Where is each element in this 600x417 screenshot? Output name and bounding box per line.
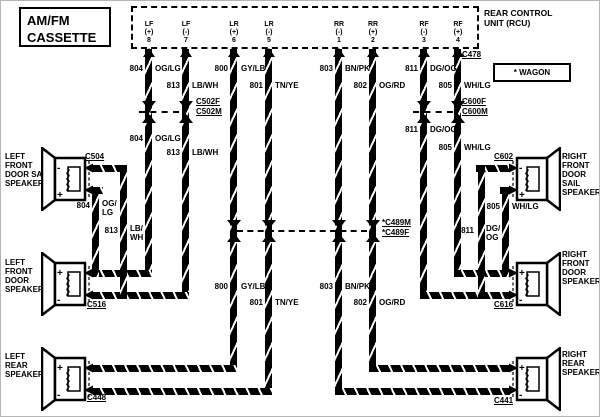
pin-rf-plus: RF(+)4 [443, 21, 473, 45]
connector-c489f: *C489F [382, 228, 409, 237]
wire-801-rcu-arrow [263, 48, 275, 57]
c489-dashed-line [237, 230, 367, 232]
wire-number: 804 [121, 134, 143, 143]
right-rear-speaker-label: RIGHTREARSPEAKER [562, 350, 600, 377]
pin-lr-plus: LR(+)6 [219, 21, 249, 45]
wire-number: 802 [345, 81, 367, 90]
wire-804-rcu-arrow [143, 48, 155, 57]
left-door-speaker-label: LEFTFRONTDOORSPEAKER [5, 258, 44, 294]
wire-color: OG/LG [155, 134, 181, 143]
rcu-label-line2: UNIT (RCU) [484, 18, 530, 28]
title-line1: AM/FM [27, 13, 70, 28]
connector-c502f: C502F [196, 97, 220, 106]
polarity-bottom: - [57, 295, 60, 306]
wire-805-vertical [454, 49, 461, 277]
wire-number: 805 [430, 81, 452, 90]
pin-rr-plus: RR(+)2 [358, 21, 388, 45]
wire-803-horizontal [335, 388, 510, 395]
wire-color: LB/WH [130, 224, 143, 242]
wire-813-horizontal [93, 292, 189, 299]
right-door-speaker-symbol: + - [509, 252, 561, 316]
wire-800-rcu-arrow [228, 48, 240, 57]
wire-811-rcu-arrow [418, 48, 430, 57]
wire-color: DG/OG [430, 64, 457, 73]
speaker-cone [547, 253, 560, 315]
wire-801-horizontal [93, 388, 272, 395]
polarity-top: - [519, 163, 522, 174]
pin-lf-plus: LF(+)8 [134, 21, 164, 45]
c489-connector-symbol-800 [226, 220, 242, 242]
speaker-cone [42, 348, 55, 410]
diagram-title: AM/FMCASSETTE [19, 7, 111, 47]
connector-c478: C478 [462, 50, 481, 59]
c489-connector-symbol-803 [331, 220, 347, 242]
wire-number: 813 [158, 148, 180, 157]
wire-802-rcu-arrow [367, 48, 379, 57]
rcu-label: REAR CONTROLUNIT (RCU) [484, 8, 552, 28]
wire-number: 811 [396, 64, 418, 73]
wire-number: 805 [430, 143, 452, 152]
wire-811-horizontal [420, 292, 510, 299]
right-sail-speaker-symbol: - + [509, 147, 561, 211]
wire-number: 803 [311, 282, 333, 291]
pin-rf-minus: RF(-)3 [409, 21, 439, 45]
wire-number: 801 [241, 81, 263, 90]
c489-connector-symbol-802 [365, 220, 381, 242]
wire-number: 803 [311, 64, 333, 73]
c489-connector-symbol-801 [261, 220, 277, 242]
wire-number: 813 [96, 226, 118, 235]
wire-color: GY/LB [241, 282, 265, 291]
wire-color: GY/LB [241, 64, 265, 73]
wire-color: DG/OG [486, 224, 500, 242]
wire-number: 805 [478, 202, 500, 211]
wire-color: OG/LG [155, 64, 181, 73]
polarity-bottom: + [57, 190, 63, 201]
polarity-top: + [57, 268, 63, 279]
speaker-cone [42, 148, 55, 210]
wire-color: OG/LG [102, 199, 117, 217]
wire-color: LB/WH [192, 148, 218, 157]
rcu-label-line1: REAR CONTROL [484, 8, 552, 18]
wire-number: 811 [396, 125, 418, 134]
wire-color: OG/RD [379, 298, 405, 307]
wire-811-vertical [420, 49, 427, 299]
wagon-note: * WAGON [493, 63, 571, 82]
wire-813-vertical [182, 49, 189, 299]
right-sail-branch-811 [478, 165, 485, 299]
wire-number: 801 [241, 298, 263, 307]
polarity-bottom: - [57, 390, 60, 401]
polarity-bottom: + [519, 190, 525, 201]
title-line2: CASSETTE [27, 30, 96, 45]
polarity-top: + [57, 363, 63, 374]
right-sail-speaker-label: RIGHTFRONTDOOR SAILSPEAKER [562, 152, 600, 197]
polarity-top: + [519, 363, 525, 374]
c502-connector-symbol-813 [178, 101, 194, 123]
wire-color: OG/RD [379, 81, 405, 90]
right-door-speaker-label: RIGHTFRONTDOORSPEAKER [562, 250, 600, 286]
right-rear-speaker-symbol: + - [509, 347, 561, 411]
wiring-diagram: AM/FMCASSETTE REAR CONTROLUNIT (RCU) C47… [0, 0, 600, 417]
right-sail-branch-805 [502, 187, 509, 277]
speaker-cone [547, 148, 560, 210]
wire-804-vertical [145, 49, 152, 277]
polarity-bottom: - [519, 390, 522, 401]
wire-number: 800 [206, 64, 228, 73]
wire-805-rcu-arrow [452, 48, 464, 57]
wire-number: 813 [158, 81, 180, 90]
wire-number: 800 [206, 282, 228, 291]
left-rear-speaker-symbol: + - [41, 347, 93, 411]
left-sail-branch-813 [120, 165, 127, 299]
wire-800-horizontal [93, 365, 237, 372]
connector-c600m: C600M [462, 107, 488, 116]
wire-color: DG/OG [430, 125, 457, 134]
wire-813-rcu-arrow [180, 48, 192, 57]
wire-color: TN/YE [275, 298, 299, 307]
wire-color: LB/WH [192, 81, 218, 90]
wire-color: WH/LG [464, 143, 491, 152]
left-rear-speaker-label: LEFTREARSPEAKER [5, 352, 44, 379]
wire-number: 811 [452, 226, 474, 235]
polarity-top: - [57, 163, 60, 174]
c502-connector-symbol-804 [141, 101, 157, 123]
wire-803-rcu-arrow [333, 48, 345, 57]
wire-color: WH/LG [464, 81, 491, 90]
wire-800-vertical [230, 49, 237, 372]
pin-lf-minus: LF(-)7 [171, 21, 201, 45]
left-door-speaker-symbol: + - [41, 252, 93, 316]
wire-number: 802 [345, 298, 367, 307]
polarity-top: + [519, 268, 525, 279]
speaker-cone [547, 348, 560, 410]
left-sail-speaker-symbol: - + [41, 147, 93, 211]
wire-number: 804 [121, 64, 143, 73]
wire-color: BN/PK [345, 282, 370, 291]
wire-802-vertical [369, 49, 376, 372]
pin-lr-minus: LR(-)5 [254, 21, 284, 45]
wire-color: TN/YE [275, 81, 299, 90]
pin-rr-minus: RR(-)1 [324, 21, 354, 45]
wire-color: BN/PK [345, 64, 370, 73]
connector-c502m: C502M [196, 107, 222, 116]
connector-c489m: *C489M [382, 218, 411, 227]
c600-connector-symbol-811 [416, 101, 432, 123]
speaker-cone [42, 253, 55, 315]
wire-802-horizontal [369, 365, 510, 372]
connector-c600f: C600F [462, 97, 486, 106]
polarity-bottom: - [519, 295, 522, 306]
